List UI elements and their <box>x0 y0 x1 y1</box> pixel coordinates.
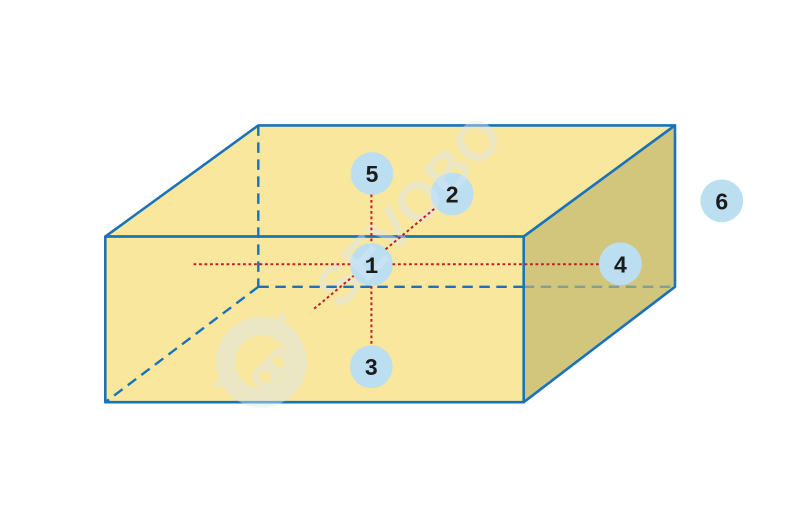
svg-text:6: 6 <box>715 188 728 214</box>
svg-text:3: 3 <box>365 354 378 380</box>
svg-text:5: 5 <box>366 161 379 187</box>
svg-text:4: 4 <box>614 251 627 277</box>
svg-text:2: 2 <box>446 182 459 208</box>
svg-text:1: 1 <box>365 254 379 280</box>
